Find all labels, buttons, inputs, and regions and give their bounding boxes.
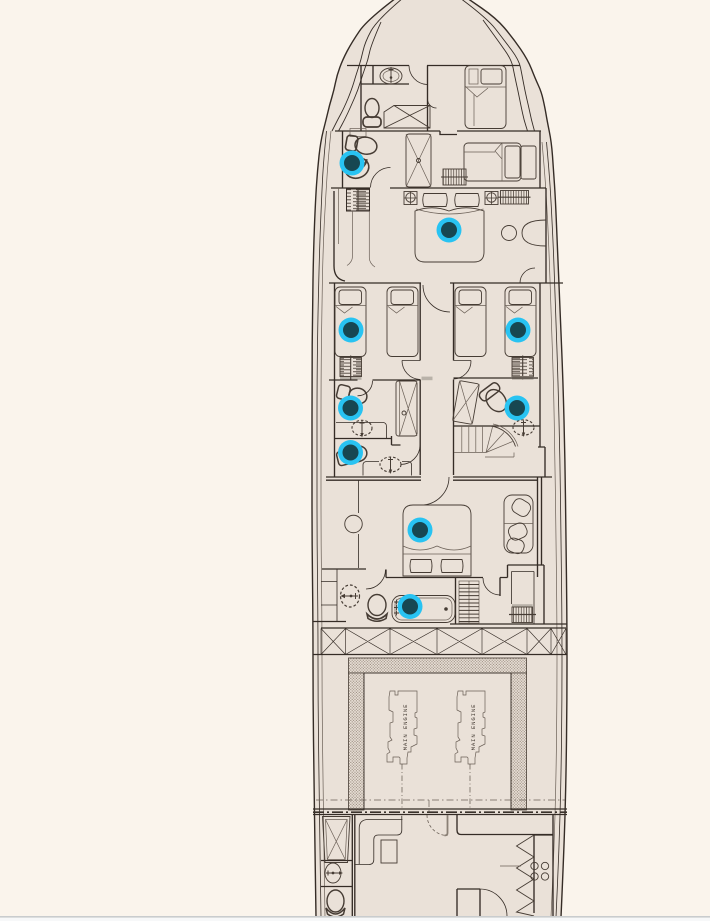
svg-text:MAIN ENGINE: MAIN ENGINE (402, 704, 409, 751)
svg-text:MAIN ENGINE: MAIN ENGINE (470, 704, 477, 751)
